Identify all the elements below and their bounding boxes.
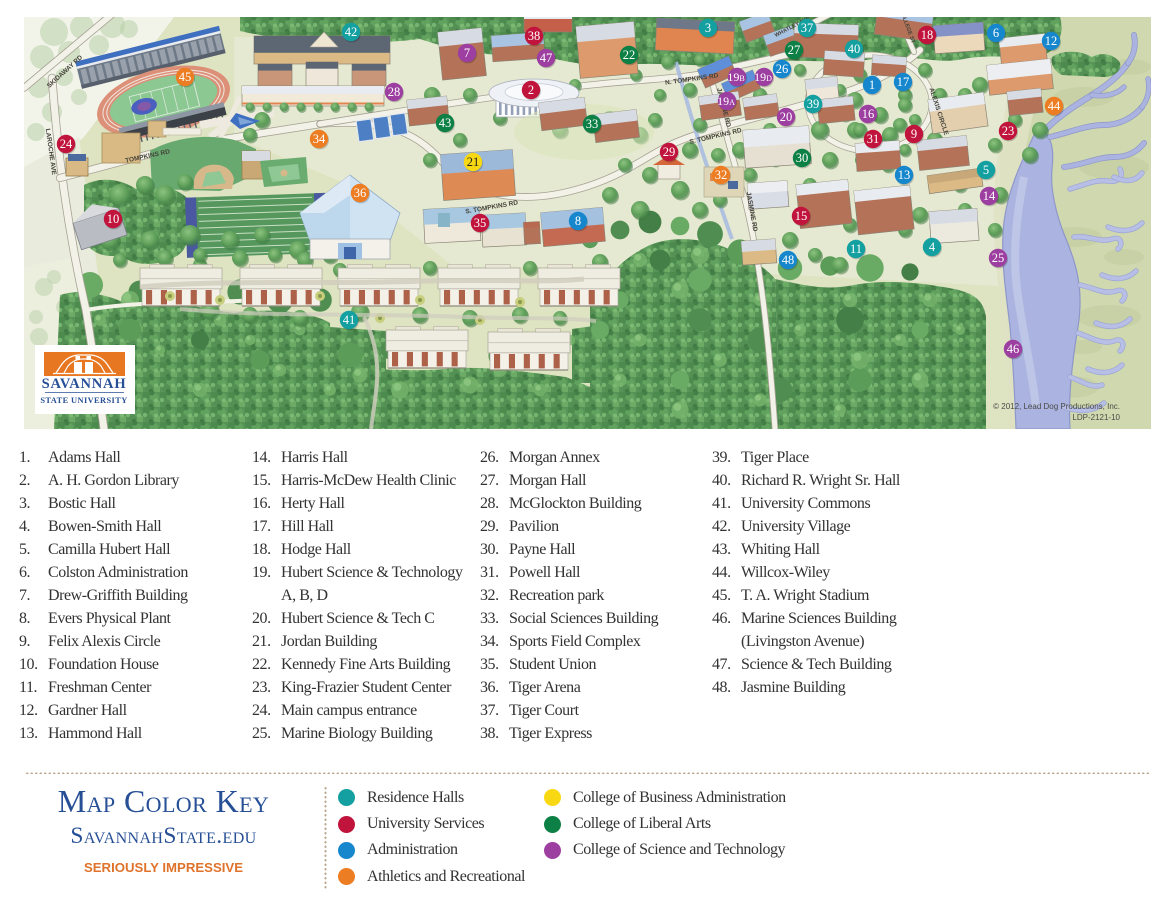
- svg-text:38: 38: [528, 29, 541, 43]
- svg-text:34: 34: [313, 132, 326, 146]
- svg-text:36: 36: [354, 186, 367, 200]
- svg-text:25: 25: [992, 251, 1005, 265]
- svg-text:12: 12: [1045, 34, 1058, 48]
- svg-text:© 2012, Lead Dog Productions,: © 2012, Lead Dog Productions, Inc.: [993, 402, 1120, 411]
- svg-text:14: 14: [983, 189, 996, 203]
- svg-text:29: 29: [663, 145, 676, 159]
- svg-text:28: 28: [388, 85, 401, 99]
- svg-text:23: 23: [1002, 124, 1015, 138]
- svg-text:4: 4: [929, 240, 936, 254]
- svg-text:1: 1: [869, 78, 875, 92]
- svg-text:22: 22: [623, 48, 636, 62]
- svg-text:47: 47: [540, 51, 553, 65]
- svg-text:44: 44: [1048, 99, 1061, 113]
- svg-text:30: 30: [796, 151, 809, 165]
- svg-text:18: 18: [921, 28, 934, 42]
- svg-text:10: 10: [107, 212, 120, 226]
- svg-text:SAVANNAH: SAVANNAH: [42, 376, 127, 392]
- svg-text:13: 13: [898, 168, 911, 182]
- svg-text:31: 31: [867, 132, 880, 146]
- svg-text:35: 35: [474, 216, 487, 230]
- svg-text:3: 3: [705, 21, 711, 35]
- svg-text:39: 39: [807, 97, 820, 111]
- svg-text:16: 16: [862, 107, 875, 121]
- svg-text:24: 24: [60, 137, 73, 151]
- svg-text:42: 42: [345, 25, 358, 39]
- svg-text:26: 26: [776, 62, 789, 76]
- svg-text:6: 6: [993, 26, 999, 40]
- svg-text:32: 32: [715, 168, 728, 182]
- svg-text:37: 37: [801, 21, 814, 35]
- svg-text:48: 48: [782, 253, 795, 267]
- svg-text:11: 11: [850, 242, 862, 256]
- svg-text:20: 20: [780, 110, 793, 124]
- svg-text:5: 5: [983, 163, 989, 177]
- svg-text:9: 9: [911, 127, 917, 141]
- svg-text:8: 8: [575, 214, 581, 228]
- svg-text:15: 15: [795, 209, 808, 223]
- svg-text:27: 27: [788, 43, 801, 57]
- svg-text:STATE UNIVERSITY: STATE UNIVERSITY: [40, 396, 127, 405]
- svg-text:45: 45: [179, 70, 192, 84]
- svg-text:41: 41: [343, 313, 356, 327]
- svg-text:46: 46: [1007, 342, 1020, 356]
- svg-text:2: 2: [528, 83, 534, 97]
- svg-text:LDP-2121-10: LDP-2121-10: [1072, 413, 1120, 422]
- svg-text:43: 43: [439, 116, 452, 130]
- svg-text:40: 40: [848, 42, 861, 56]
- svg-text:17: 17: [897, 75, 910, 89]
- svg-text:33: 33: [586, 117, 599, 131]
- svg-text:7: 7: [464, 46, 470, 60]
- svg-text:21: 21: [467, 155, 480, 169]
